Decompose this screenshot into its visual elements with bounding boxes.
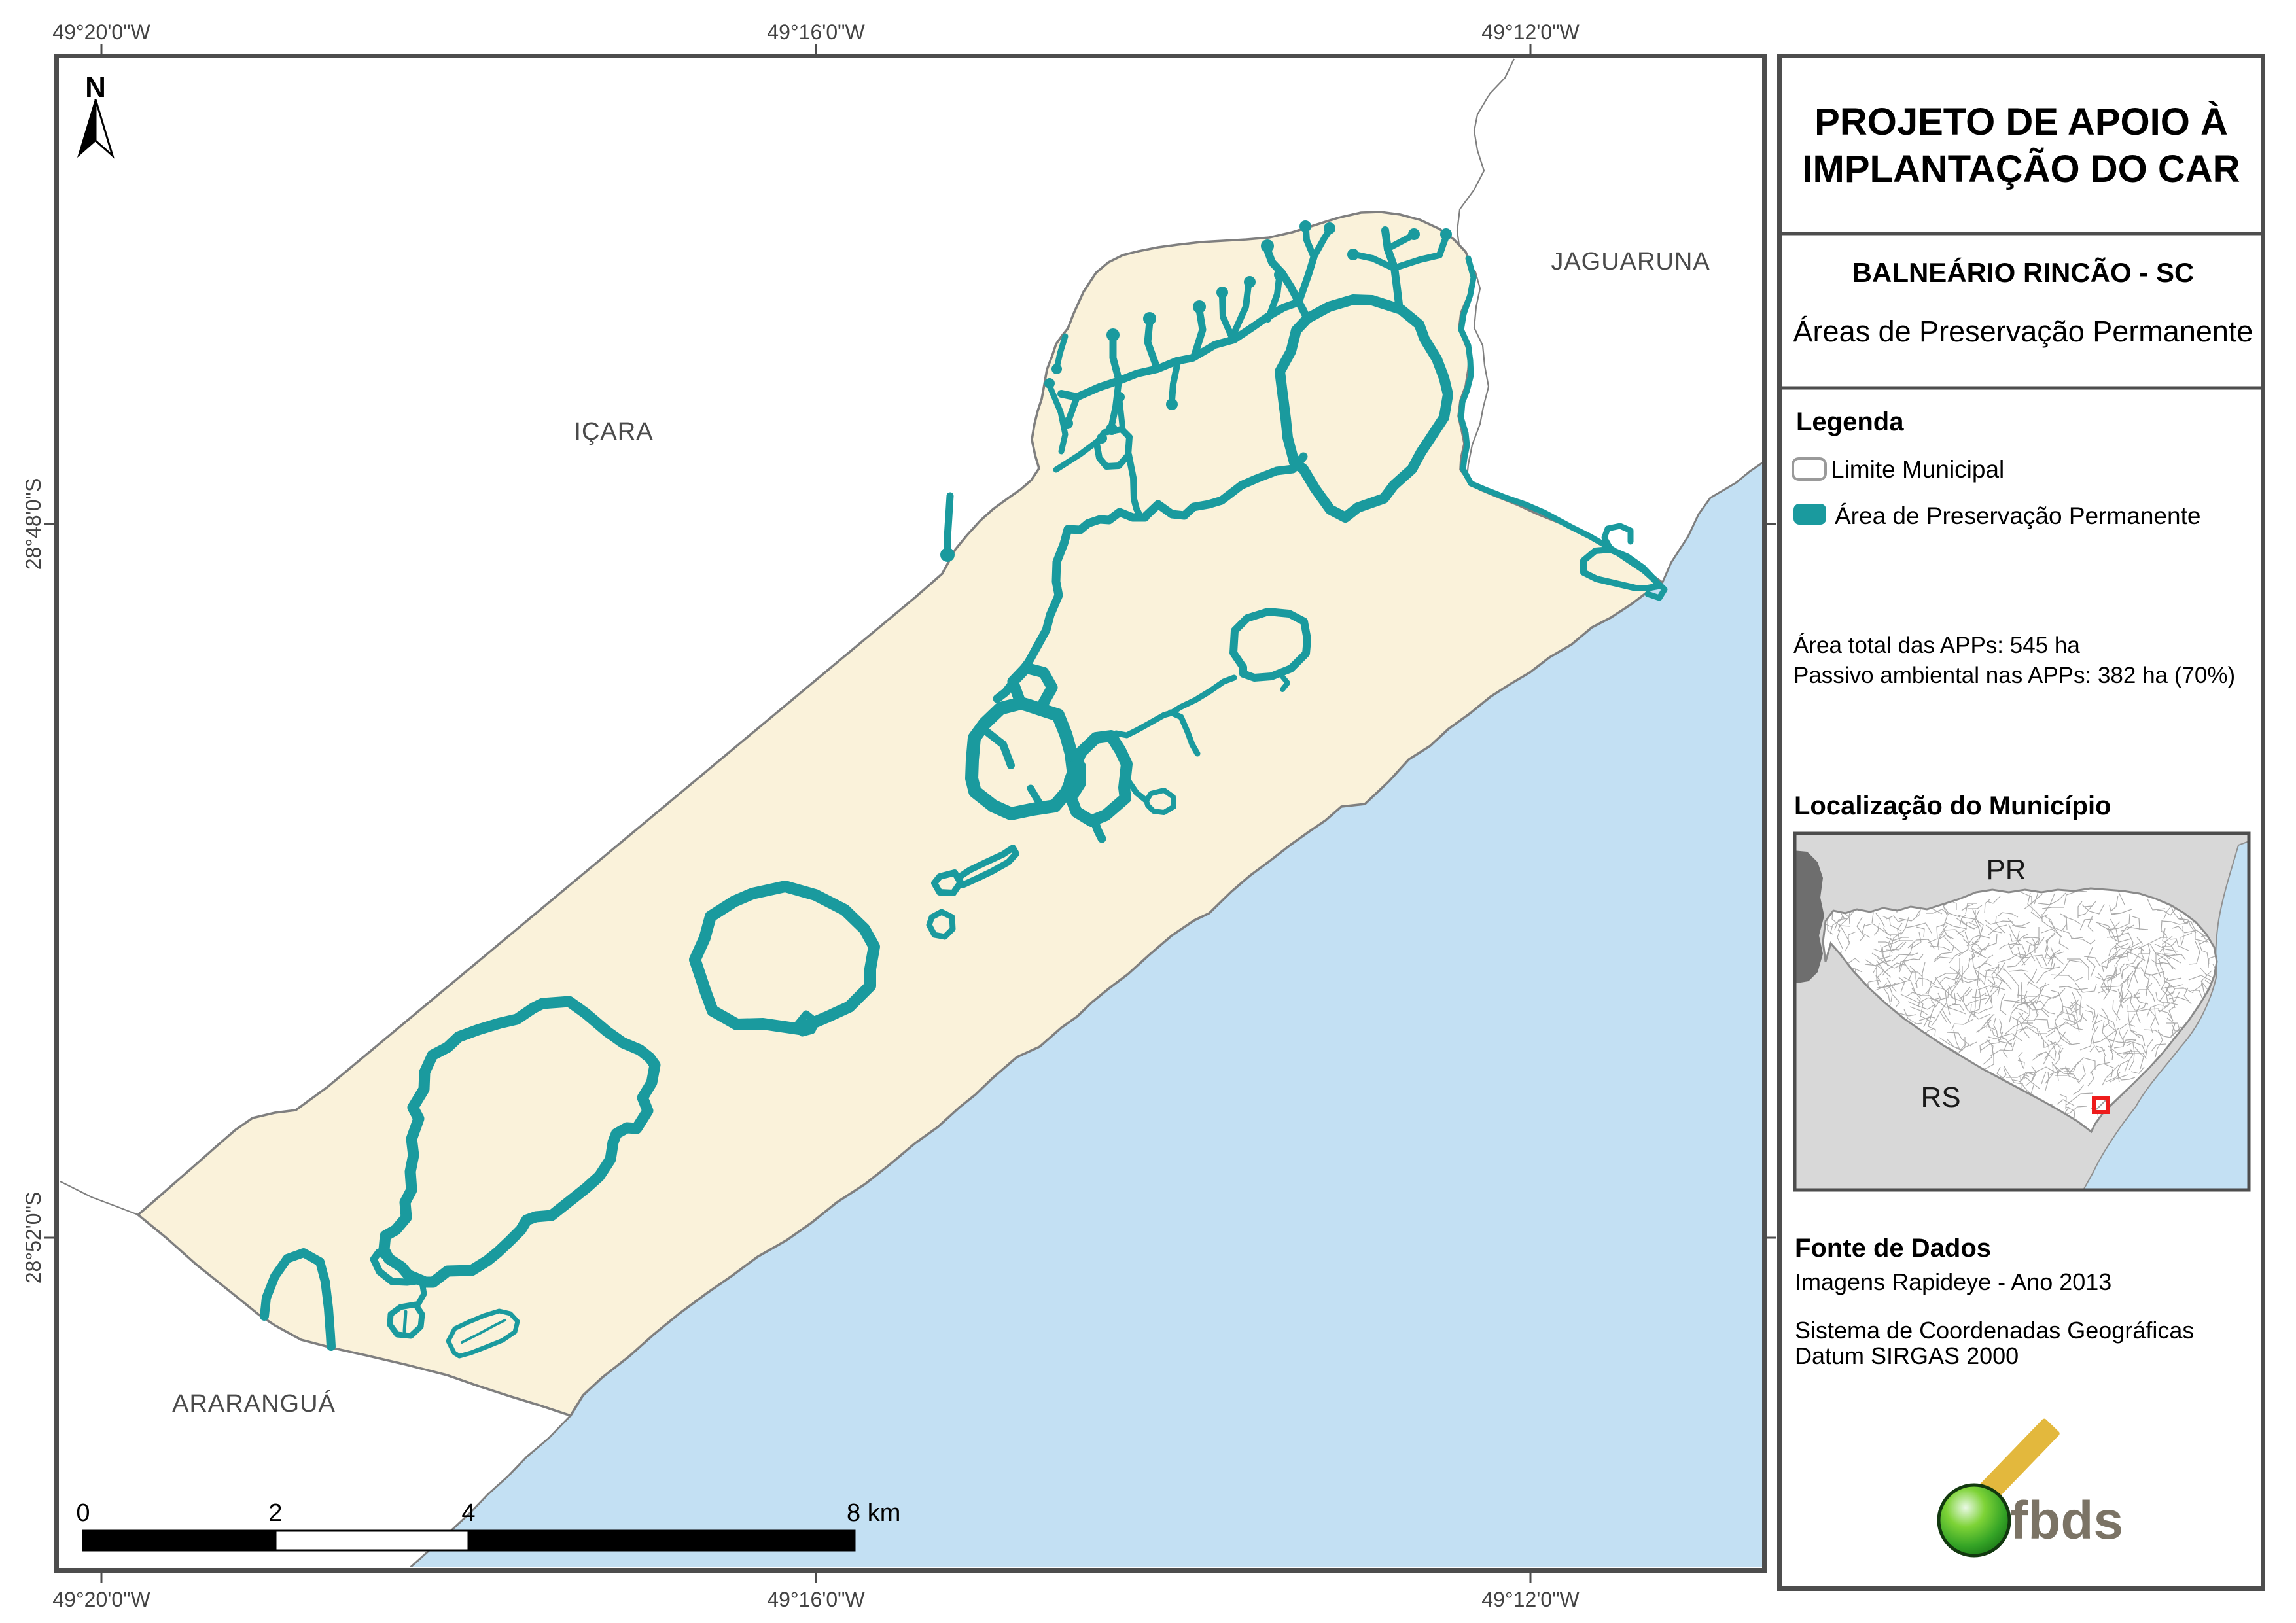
svg-text:28°48'0"S: 28°48'0"S bbox=[22, 478, 45, 570]
svg-text:BALNEÁRIO RINCÃO - SC: BALNEÁRIO RINCÃO - SC bbox=[1852, 257, 2195, 288]
svg-text:Fonte de Dados: Fonte de Dados bbox=[1795, 1234, 1991, 1263]
svg-text:Passivo ambiental nas APPs: 38: Passivo ambiental nas APPs: 382 ha (70%) bbox=[1793, 663, 2235, 688]
svg-text:49°16'0"W: 49°16'0"W bbox=[767, 20, 865, 44]
svg-text:49°20'0"W: 49°20'0"W bbox=[52, 20, 150, 44]
svg-text:RS: RS bbox=[1920, 1081, 1960, 1113]
svg-text:Limite Municipal: Limite Municipal bbox=[1831, 456, 2004, 483]
svg-text:Datum SIRGAS 2000: Datum SIRGAS 2000 bbox=[1795, 1342, 2019, 1369]
svg-text:Imagens Rapideye - Ano 2013: Imagens Rapideye - Ano 2013 bbox=[1795, 1268, 2111, 1295]
svg-text:Localização do Município: Localização do Município bbox=[1794, 792, 2111, 820]
svg-text:Área de Preservação Permanente: Área de Preservação Permanente bbox=[1835, 502, 2200, 529]
svg-text:Sistema de Coordenadas Geográf: Sistema de Coordenadas Geográficas bbox=[1795, 1317, 2194, 1344]
svg-text:8 km: 8 km bbox=[847, 1499, 900, 1527]
svg-text:IÇARA: IÇARA bbox=[574, 418, 653, 445]
svg-text:PR: PR bbox=[1986, 854, 2026, 886]
svg-text:49°12'0"W: 49°12'0"W bbox=[1481, 20, 1580, 44]
svg-text:Área total das APPs: 545 ha: Área total das APPs: 545 ha bbox=[1793, 633, 2080, 658]
svg-text:2: 2 bbox=[268, 1499, 282, 1527]
svg-text:fbds: fbds bbox=[2010, 1491, 2123, 1550]
svg-text:IMPLANTAÇÃO DO CAR: IMPLANTAÇÃO DO CAR bbox=[1802, 148, 2240, 190]
svg-text:4: 4 bbox=[461, 1499, 475, 1527]
svg-text:ARARANGUÁ: ARARANGUÁ bbox=[172, 1389, 336, 1418]
svg-text:Áreas de Preservação Permanent: Áreas de Preservação Permanente bbox=[1793, 315, 2253, 348]
svg-text:PROJETO DE APOIO À: PROJETO DE APOIO À bbox=[1814, 101, 2228, 143]
svg-text:49°20'0"W: 49°20'0"W bbox=[52, 1588, 150, 1611]
svg-text:49°12'0"W: 49°12'0"W bbox=[1481, 1588, 1580, 1611]
svg-text:28°52'0"S: 28°52'0"S bbox=[22, 1192, 45, 1284]
svg-text:0: 0 bbox=[76, 1499, 90, 1527]
svg-text:N: N bbox=[85, 71, 106, 103]
svg-text:Legenda: Legenda bbox=[1796, 408, 1904, 436]
svg-text:JAGUARUNA: JAGUARUNA bbox=[1551, 248, 1710, 275]
svg-text:49°16'0"W: 49°16'0"W bbox=[767, 1588, 865, 1611]
